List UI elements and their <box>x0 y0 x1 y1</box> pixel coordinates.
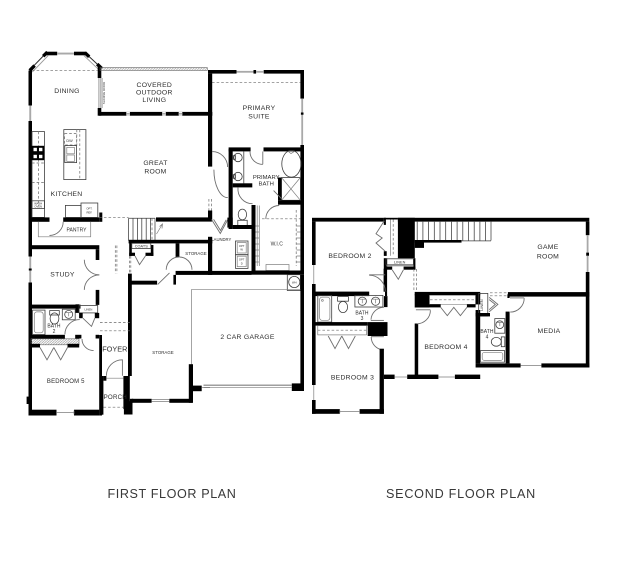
svg-text:BEDROOM 3: BEDROOM 3 <box>331 375 374 382</box>
svg-text:SECOND FLOOR PLAN: SECOND FLOOR PLAN <box>386 487 536 501</box>
svg-text:WH: WH <box>292 281 297 285</box>
svg-text:LIVING: LIVING <box>142 97 166 104</box>
svg-text:PRIMARY: PRIMARY <box>243 105 276 112</box>
svg-text:OPT: OPT <box>239 244 245 248</box>
svg-text:PORCH: PORCH <box>104 394 127 401</box>
svg-text:ROOM: ROOM <box>144 168 166 175</box>
svg-text:4: 4 <box>486 335 489 341</box>
svg-text:KITCHEN: KITCHEN <box>51 191 83 198</box>
svg-text:OPT: OPT <box>239 258 245 262</box>
svg-text:OVEN: OVEN <box>34 205 42 209</box>
svg-text:COATS: COATS <box>135 245 148 249</box>
svg-text:W: W <box>240 248 243 252</box>
svg-text:2: 2 <box>53 329 56 335</box>
svg-text:DW: DW <box>66 139 73 143</box>
svg-text:BATH: BATH <box>259 181 274 187</box>
svg-text:LAUNDRY: LAUNDRY <box>211 237 231 242</box>
svg-text:STUDY: STUDY <box>50 271 75 278</box>
svg-text:3: 3 <box>361 316 364 322</box>
svg-text:PRIMARY: PRIMARY <box>253 175 280 181</box>
svg-text:OUTDOOR: OUTDOOR <box>136 90 173 97</box>
svg-text:FIRST FLOOR PLAN: FIRST FLOOR PLAN <box>107 487 236 501</box>
svg-text:COVERED: COVERED <box>137 82 173 89</box>
svg-text:BEDROOM 4: BEDROOM 4 <box>424 344 467 351</box>
svg-text:2 CAR GARAGE: 2 CAR GARAGE <box>220 334 275 341</box>
svg-text:STORAGE: STORAGE <box>185 251 206 256</box>
svg-text:LINEN: LINEN <box>394 261 406 265</box>
svg-text:LINEN: LINEN <box>480 299 484 311</box>
svg-text:REF.: REF. <box>86 211 92 215</box>
svg-text:SUITE: SUITE <box>248 113 270 120</box>
svg-text:MEDIA: MEDIA <box>538 328 561 335</box>
svg-text:LINEN: LINEN <box>84 308 92 312</box>
svg-text:W.I.C: W.I.C <box>271 241 284 247</box>
svg-text:BEDROOM 2: BEDROOM 2 <box>328 253 371 260</box>
svg-text:OPT.: OPT. <box>86 207 92 211</box>
svg-text:GREAT: GREAT <box>143 160 167 167</box>
svg-text:GAME: GAME <box>537 244 558 251</box>
svg-text:ROOM: ROOM <box>537 254 559 261</box>
svg-text:FOYER: FOYER <box>102 344 127 353</box>
svg-text:SLIDING DOOR: SLIDING DOOR <box>102 81 106 104</box>
svg-text:PANTRY: PANTRY <box>66 227 87 233</box>
svg-text:STORAGE: STORAGE <box>152 350 173 355</box>
svg-text:DINING: DINING <box>54 88 79 95</box>
svg-text:BEDROOM 5: BEDROOM 5 <box>47 379 85 385</box>
svg-text:D: D <box>241 261 243 265</box>
